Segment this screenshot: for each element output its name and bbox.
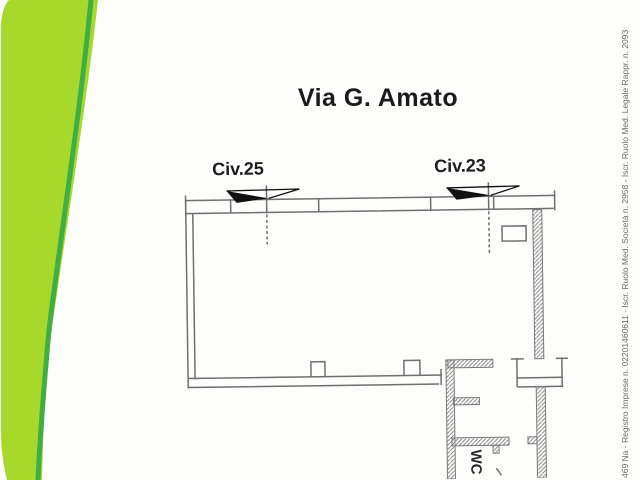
civ25-flag-icon [226, 189, 299, 203]
floor-plan-area: Civ.25 Civ.23 [0, 0, 640, 480]
plan-hatched-walls [444, 210, 547, 479]
wc-label: WC [466, 449, 485, 480]
registry-side-text: 469 Na - Registro Imprese n. 02201460611… [620, 42, 635, 478]
civ23-flag-icon [446, 186, 519, 200]
plan-walls [185, 181, 569, 479]
floor-plan-drawing [0, 0, 640, 480]
scanned-floorplan-page: Via G. Amato Civ.25 Civ.23 [0, 0, 640, 480]
